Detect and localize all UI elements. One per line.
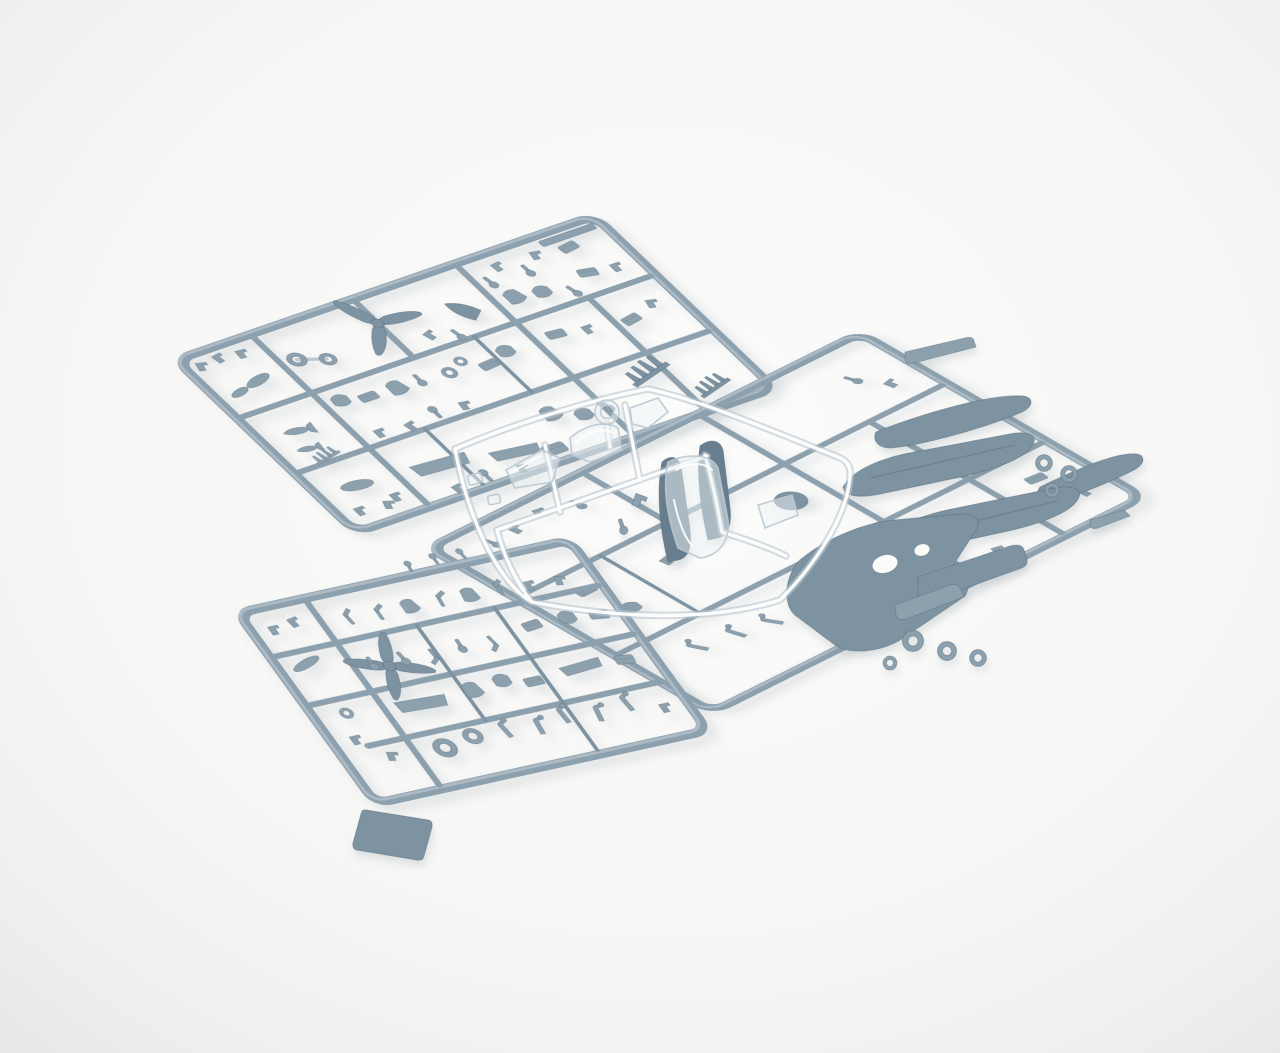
model-kit-sprues-photo xyxy=(0,0,1280,1053)
part-clear-light xyxy=(487,494,500,505)
part-panel xyxy=(613,654,636,665)
